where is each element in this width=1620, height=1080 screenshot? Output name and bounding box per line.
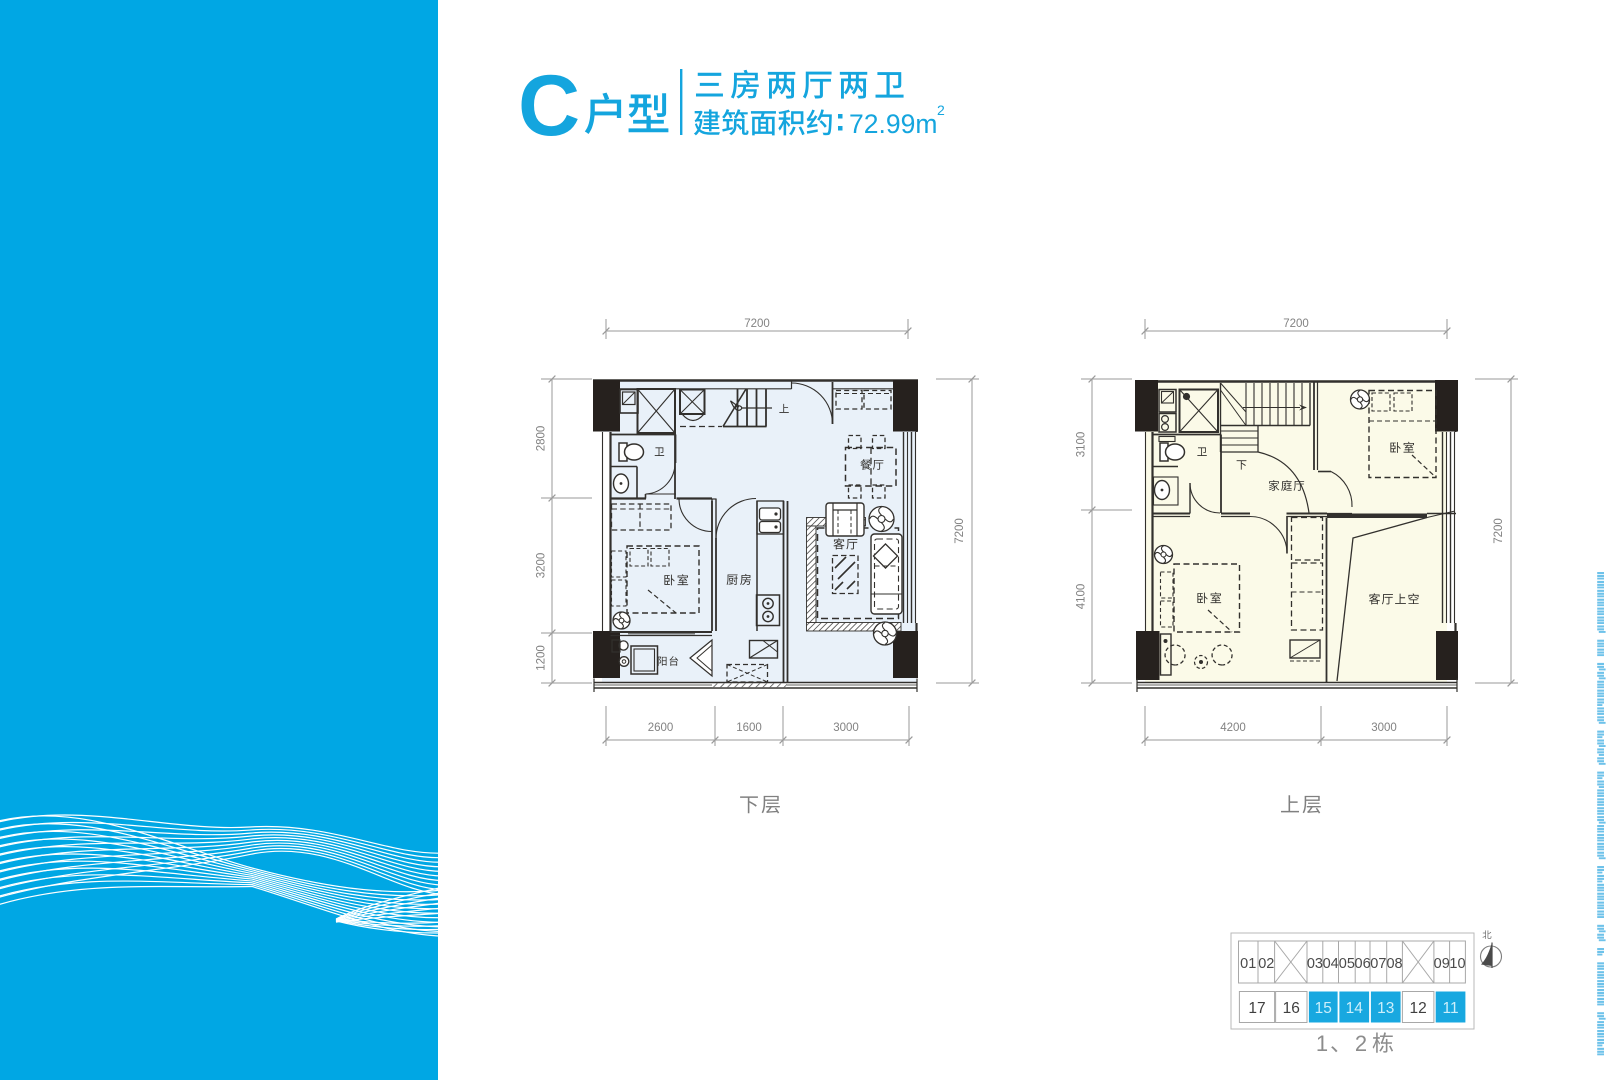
svg-text:05: 05 (1339, 956, 1355, 972)
svg-text:07: 07 (1370, 956, 1386, 972)
svg-text:12: 12 (1410, 1000, 1427, 1017)
svg-text:7200: 7200 (744, 318, 770, 330)
svg-text:09: 09 (1434, 956, 1450, 972)
svg-text:7200: 7200 (1283, 318, 1309, 330)
svg-text:2600: 2600 (648, 722, 674, 734)
svg-text:3200: 3200 (536, 553, 548, 579)
svg-text:16: 16 (1283, 1000, 1300, 1017)
svg-text:2: 2 (1355, 1031, 1367, 1056)
svg-text:04: 04 (1323, 956, 1339, 972)
svg-text:01: 01 (1240, 956, 1256, 972)
svg-text:3000: 3000 (1371, 722, 1397, 734)
svg-text:1600: 1600 (736, 722, 762, 734)
svg-text:C: C (518, 58, 580, 154)
svg-text:14: 14 (1346, 1000, 1364, 1017)
svg-text:7200: 7200 (954, 518, 966, 544)
svg-text:08: 08 (1386, 956, 1402, 972)
svg-text:11: 11 (1443, 1000, 1459, 1017)
svg-text:1200: 1200 (536, 645, 548, 671)
svg-text:17: 17 (1248, 1000, 1265, 1017)
svg-text:4200: 4200 (1220, 722, 1246, 734)
svg-text:1: 1 (1316, 1031, 1328, 1056)
svg-text:7200: 7200 (1493, 518, 1505, 544)
svg-text:02: 02 (1258, 956, 1274, 972)
svg-text:2: 2 (937, 102, 945, 118)
svg-text:2800: 2800 (536, 426, 548, 452)
svg-text:4100: 4100 (1076, 584, 1088, 610)
svg-text:13: 13 (1377, 1000, 1394, 1017)
svg-text:72.99m: 72.99m (849, 109, 937, 139)
svg-text:10: 10 (1449, 956, 1465, 972)
svg-text:03: 03 (1307, 956, 1323, 972)
svg-text:3000: 3000 (833, 722, 859, 734)
svg-text:15: 15 (1315, 1000, 1332, 1017)
svg-text:3100: 3100 (1076, 432, 1088, 458)
svg-text:06: 06 (1355, 956, 1371, 972)
